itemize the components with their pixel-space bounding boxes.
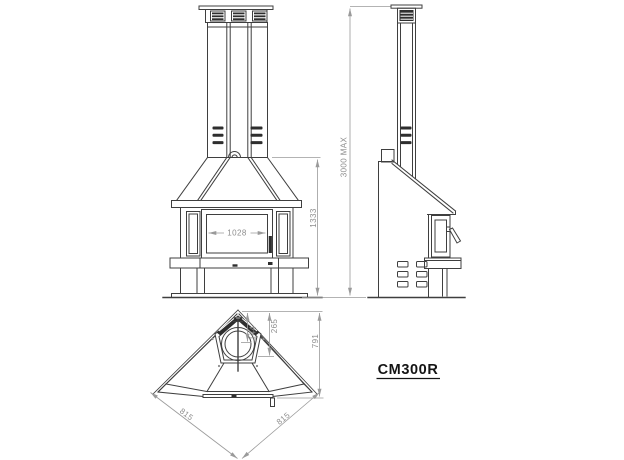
front-base <box>163 258 322 298</box>
dim-door-width: 1028 <box>227 229 247 238</box>
side-hood <box>379 150 456 215</box>
side-view <box>368 5 465 298</box>
model-label: CM300R <box>378 362 439 378</box>
side-shelf <box>425 258 462 269</box>
plan-flue <box>211 316 264 371</box>
dim-right-side: 815 <box>275 410 292 426</box>
plan-front-face <box>203 395 273 398</box>
front-view: 1028 <box>163 6 322 298</box>
front-body: 1028 <box>181 208 294 259</box>
side-body-vents <box>398 262 428 288</box>
dim-flue-outer: 265 <box>270 319 279 334</box>
side-chimney-vents <box>401 127 412 145</box>
plan-view: 144 265 791 815 815 <box>151 310 324 459</box>
front-hood <box>172 152 302 208</box>
front-shelf <box>170 258 309 268</box>
side-body <box>368 162 465 298</box>
side-door-handle <box>450 228 461 243</box>
model-label-group: CM300R <box>377 362 441 379</box>
front-chimney <box>199 6 273 158</box>
dim-max-height: 3000 MAX <box>340 136 349 177</box>
dim-plan-depth: 791 <box>311 334 320 349</box>
fireplace-technical-drawing: 1028 <box>0 0 624 460</box>
front-door-handle <box>269 236 272 253</box>
drawing-canvas: 1028 <box>0 0 624 460</box>
front-chimney-louvers <box>211 11 268 21</box>
plan-front-foot <box>271 398 275 407</box>
dim-left-side: 815 <box>178 407 195 423</box>
dim-flue-inner: 144 <box>249 326 258 341</box>
side-chimney <box>391 5 422 179</box>
dim-line-left-side <box>151 393 238 459</box>
front-chimney-vents <box>213 127 263 145</box>
side-door <box>432 216 451 258</box>
dim-front-height: 1333 <box>309 208 318 228</box>
